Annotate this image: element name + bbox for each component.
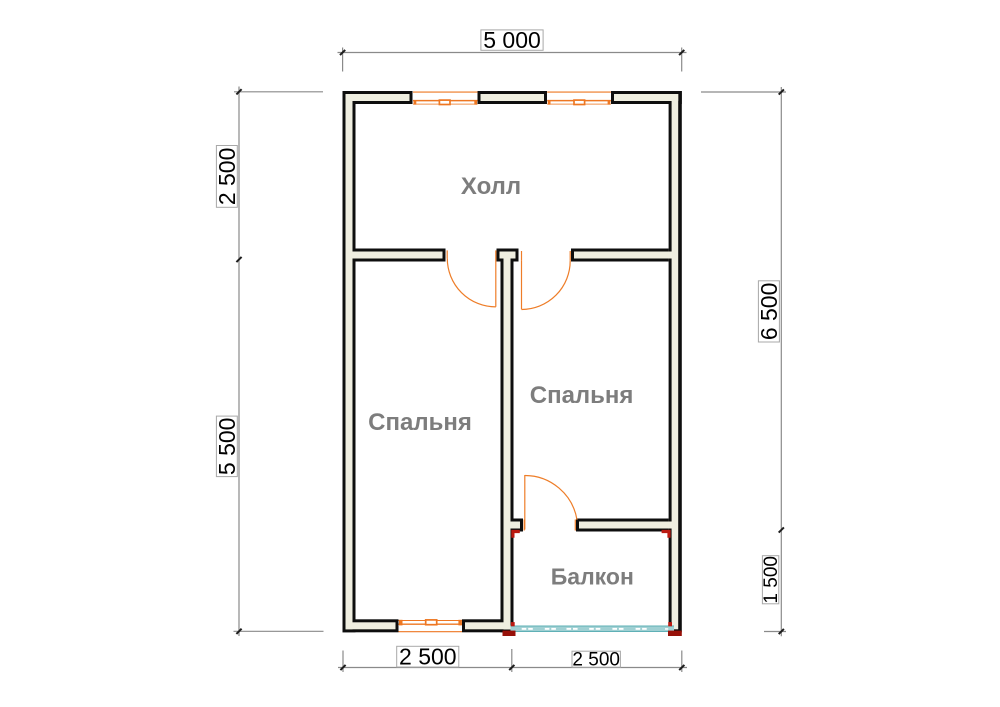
svg-text:Спальня: Спальня [368, 409, 472, 436]
svg-text:5 500: 5 500 [214, 418, 240, 476]
svg-text:1 500: 1 500 [761, 556, 782, 604]
svg-text:2 500: 2 500 [399, 644, 457, 670]
svg-text:2 500: 2 500 [572, 650, 620, 671]
svg-text:Спальня: Спальня [530, 382, 634, 409]
svg-text:Холл: Холл [461, 173, 521, 200]
svg-text:5 000: 5 000 [483, 27, 541, 53]
svg-text:2 500: 2 500 [214, 148, 240, 206]
svg-text:6 500: 6 500 [756, 283, 782, 341]
svg-text:Балкон: Балкон [551, 564, 634, 590]
